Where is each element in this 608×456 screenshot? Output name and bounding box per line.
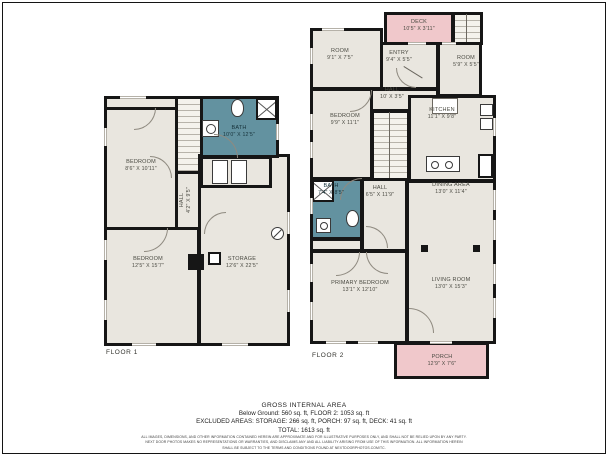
room-label-hall-upper: HALL 10' X 3'5" — [362, 87, 422, 101]
door-opening — [408, 42, 426, 45]
floor2-caption: FLOOR 2 — [312, 352, 344, 359]
window — [287, 290, 290, 312]
window — [310, 302, 313, 320]
window — [104, 240, 107, 260]
room-label-bath: BATH 10'0" X 12'5" — [209, 125, 269, 139]
floor1-plan: BEDROOM 8'6" X 10'11" BATH 10'0" X 12'5"… — [104, 94, 292, 348]
window — [104, 300, 107, 320]
summary-line1: Below Ground: 560 sq. ft, FLOOR 2: 1053 … — [0, 410, 608, 418]
window — [493, 190, 496, 210]
floor2-primary-bedroom-room — [310, 250, 408, 344]
stair-rail-line — [466, 14, 467, 43]
floor2-plan: DECK 10'5" X 3'11" ROOM 9'1" X 7'5" ENTR… — [308, 12, 504, 380]
room-label-primary-bedroom: PRIMARY BEDROOM 13'1" X 12'10" — [320, 280, 400, 294]
floor2-room-right — [437, 42, 482, 97]
window — [276, 124, 279, 140]
window — [326, 341, 346, 344]
window — [222, 343, 248, 346]
floor2-staircase — [371, 110, 410, 182]
area-summary: GROSS INTERNAL AREA Below Ground: 560 sq… — [0, 402, 608, 435]
stove-icon — [426, 156, 460, 172]
disclaimer-text: ALL IMAGES, DIMENSIONS, AND OTHER INFORM… — [0, 435, 608, 451]
window — [322, 28, 344, 31]
washer-icon — [212, 160, 228, 184]
room-label-dining: DINING AREA 13'0" X 11'4" — [421, 182, 481, 196]
page-border — [2, 2, 606, 454]
dryer-icon — [231, 160, 247, 184]
post-block — [473, 245, 480, 252]
window — [120, 96, 146, 99]
summary-line2: EXCLUDED AREAS: STORAGE: 266 sq. ft, POR… — [0, 418, 608, 426]
burner-icon — [445, 161, 453, 169]
window — [132, 343, 156, 346]
sink-icon — [316, 218, 331, 233]
room-label-bath: BATH 7'4" X 8'5" — [308, 183, 354, 197]
sink-basin-icon — [320, 222, 328, 230]
room-label-bedroom-top: BEDROOM 8'6" X 10'11" — [111, 159, 171, 173]
room-label-room-left: ROOM 9'1" X 7'5" — [310, 48, 370, 62]
room-label-bedroom-bottom: BEDROOM 12'5" X 15'7" — [118, 256, 178, 270]
window — [310, 198, 313, 214]
window — [493, 264, 496, 284]
room-label-deck: DECK 10'5" X 3'11" — [389, 19, 449, 33]
window — [358, 341, 378, 344]
floor1-caption: FLOOR 1 — [106, 349, 138, 356]
appliance-box — [480, 104, 493, 116]
window — [310, 264, 313, 282]
disclaimer-line3: SHALL BE SUBJECT TO THE TERMS AND CONDIT… — [0, 446, 608, 451]
room-label-entry: ENTRY 9'4" X 5'5" — [370, 50, 428, 64]
window — [493, 298, 496, 318]
toilet-icon — [346, 210, 359, 227]
room-label-kitchen: KITCHEN 11'1" X 9'8" — [412, 107, 472, 121]
summary-line3: TOTAL: 1613 sq. ft — [0, 427, 608, 435]
fridge-icon — [478, 154, 493, 178]
room-label-porch: PORCH 12'9" X 7'6" — [412, 354, 472, 368]
shower-icon — [256, 98, 277, 120]
room-label-living-room: LIVING ROOM 13'0" X 15'3" — [421, 277, 481, 291]
room-label-hall: HALL 4'2" X 9'5" — [179, 170, 199, 230]
summary-title: GROSS INTERNAL AREA — [0, 402, 608, 409]
stair-rail-line — [389, 112, 390, 180]
window — [310, 114, 313, 130]
window — [493, 118, 496, 136]
chimney-block — [188, 254, 204, 270]
appliance-box — [480, 118, 493, 130]
room-label-bedroom: BEDROOM 9'9" X 11'1" — [315, 113, 375, 127]
door-opening — [430, 341, 452, 344]
window — [310, 142, 313, 158]
room-label-storage: STORAGE 12'6" X 22'5" — [212, 256, 272, 270]
floor2-exterior-stairs — [452, 12, 483, 45]
burner-icon — [431, 161, 439, 169]
room-label-room-right: ROOM 5'9" X 5'5" — [436, 55, 496, 69]
floorplan-page: BEDROOM 8'6" X 10'11" BATH 10'0" X 12'5"… — [0, 0, 608, 456]
window — [287, 212, 290, 234]
window — [104, 128, 107, 146]
toilet-icon — [231, 99, 244, 117]
room-label-hall-lower: HALL 6'5" X 11'9" — [350, 185, 410, 199]
window — [493, 220, 496, 240]
door-opening — [442, 42, 456, 45]
post-block — [421, 245, 428, 252]
electric-meter-icon — [271, 227, 284, 240]
